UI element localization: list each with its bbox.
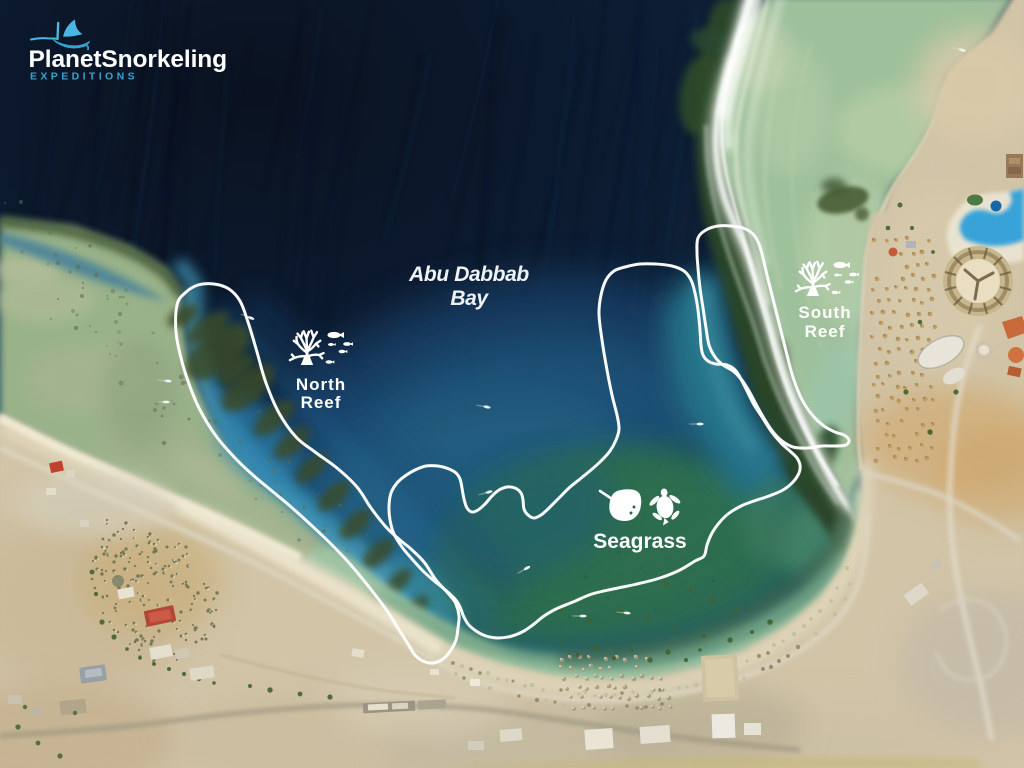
svg-text:EXPEDITIONS: EXPEDITIONS [30,71,138,83]
svg-text:PlanetSnorkeling: PlanetSnorkeling [29,46,228,73]
svg-text:Abu Dabbab: Abu Dabbab [408,263,529,286]
svg-text:Reef: Reef [805,322,846,341]
svg-text:South: South [798,303,851,322]
svg-text:Bay: Bay [450,287,489,310]
svg-text:North: North [296,375,346,394]
svg-text:Seagrass: Seagrass [593,530,686,553]
svg-text:Reef: Reef [301,393,342,412]
